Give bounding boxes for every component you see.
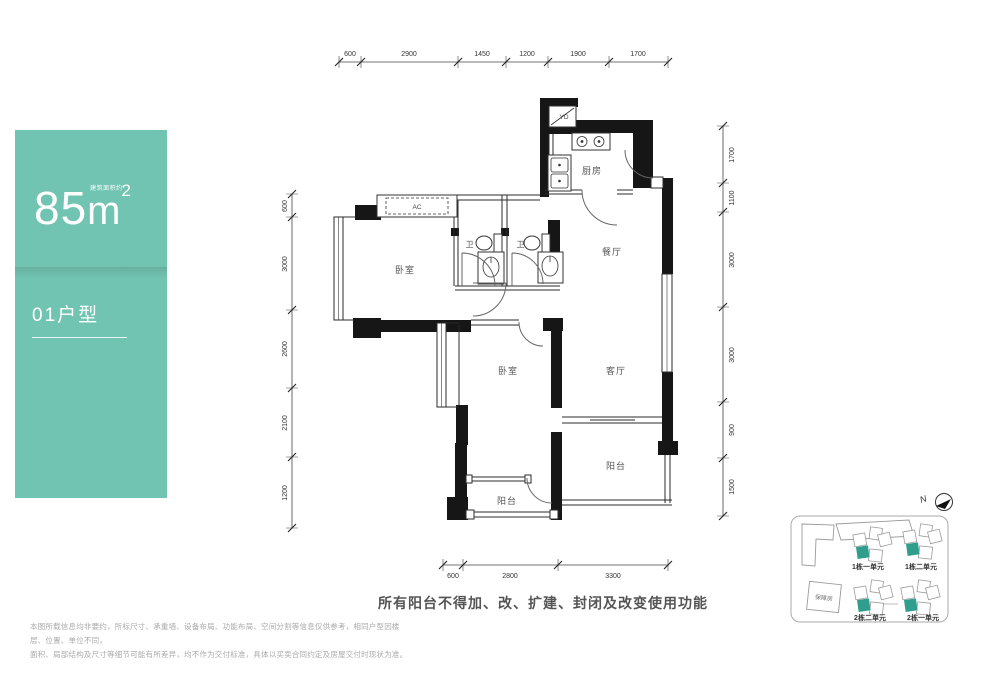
svg-text:1200: 1200 (519, 51, 535, 58)
svg-text:1100: 1100 (729, 190, 736, 205)
toilet-icon-bath2 (524, 234, 550, 252)
svg-text:2100: 2100 (282, 415, 289, 431)
svg-text:YD: YD (559, 114, 568, 121)
label-bedroom2: 卧室 (498, 365, 518, 376)
bay-window-bedroom1 (334, 217, 356, 320)
svg-text:600: 600 (282, 200, 289, 212)
legal-disclaimer: 本图所载信息均非要约，所标尺寸、承重墙、设备布局、功能布局、空间分割等信息仅供参… (30, 620, 410, 662)
label-bedroom1: 卧室 (395, 264, 415, 275)
svg-text:2800: 2800 (502, 573, 518, 580)
svg-text:2900: 2900 (401, 51, 417, 58)
label-living: 客厅 (606, 365, 626, 376)
svg-text:3300: 3300 (605, 573, 621, 580)
window-living-east (662, 274, 672, 372)
svg-text:N: N (919, 493, 929, 505)
svg-text:3000: 3000 (729, 347, 736, 363)
north-indicator: N (919, 493, 953, 510)
cluster-label-1: 1栋一单元 (852, 562, 884, 571)
label-balcony-left: 阳台 (497, 495, 517, 506)
dim-left: 600 3000 2600 2100 1200 (282, 190, 298, 532)
svg-text:600: 600 (447, 573, 459, 580)
svg-text:1450: 1450 (474, 51, 490, 58)
floorplan-page: 85建筑面积约m2 01户型 600 2900 1450 1200 1900 1… (0, 0, 1000, 673)
basin-icon-bath2 (538, 252, 563, 283)
site-map: N 保障房 (791, 493, 953, 622)
window-bedroom2-west (437, 323, 459, 407)
svg-text:1700: 1700 (729, 147, 736, 163)
toilet-icon-bath1 (476, 234, 502, 252)
cluster-label-2: 1栋二单元 (905, 562, 937, 571)
disclaimer-line-2: 面积、局部结构及尺寸等细节可能有所差异，均不作为交付标准，具体以买卖合同约定及房… (30, 648, 410, 662)
svg-text:1900: 1900 (570, 51, 586, 58)
dim-top: 600 2900 1450 1200 1900 1700 (335, 51, 672, 68)
dim-right: 1700 1100 3000 3000 900 1500 (717, 122, 736, 520)
stove-icon (572, 133, 610, 150)
svg-text:1700: 1700 (630, 51, 646, 58)
kitchen-sink-icon (548, 155, 571, 191)
svg-text:AC: AC (412, 204, 421, 211)
cluster-label-3: 2栋二单元 (854, 613, 886, 622)
label-bath2: 卫 (517, 240, 526, 249)
load-bearing-walls (353, 98, 678, 520)
floor-plan-svg: 600 2900 1450 1200 1900 1700 600 3000 26… (0, 0, 1000, 673)
svg-text:3000: 3000 (729, 252, 736, 268)
affordable-housing-box: 保障房 (807, 581, 842, 612)
label-dining: 餐厅 (602, 246, 622, 257)
svg-text:600: 600 (344, 51, 356, 58)
label-balcony-right: 阳台 (606, 460, 626, 471)
windows (334, 217, 672, 407)
label-bath1: 卫 (466, 240, 475, 249)
svg-text:1500: 1500 (729, 479, 736, 495)
svg-text:900: 900 (729, 424, 736, 436)
disclaimer-line-1: 本图所载信息均非要约，所标尺寸、承重墙、设备布局、功能布局、空间分割等信息仅供参… (30, 620, 410, 648)
basin-icon-bath1 (478, 252, 504, 284)
balcony-warning-note: 所有阳台不得加、改、扩建、封闭及改变使用功能 (378, 593, 708, 613)
yd-shaft: YD (549, 106, 576, 127)
svg-text:1200: 1200 (282, 485, 289, 501)
dim-bottom: 600 2800 3300 (439, 559, 672, 580)
svg-text:3000: 3000 (282, 256, 289, 272)
svg-text:2600: 2600 (282, 341, 289, 357)
ac-platform: AC (377, 195, 457, 217)
label-kitchen: 厨房 (582, 165, 602, 176)
cluster-label-4: 2栋一单元 (907, 613, 939, 622)
